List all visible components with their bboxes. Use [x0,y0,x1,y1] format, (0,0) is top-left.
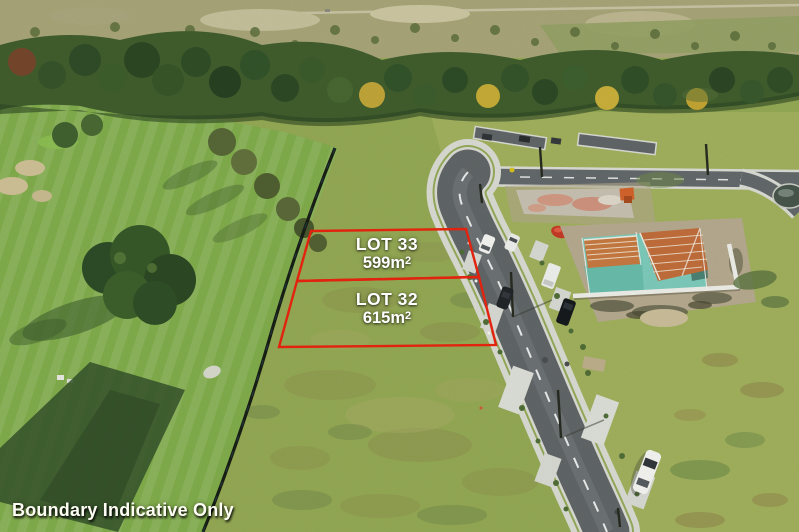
boundary-disclaimer: Boundary Indicative Only [12,500,234,521]
aerial-photo-canvas [0,0,799,532]
grain-overlay [0,0,799,532]
aerial-photo: LOT 33 599m2 LOT 32 615m2 Boundary Indic… [0,0,799,532]
